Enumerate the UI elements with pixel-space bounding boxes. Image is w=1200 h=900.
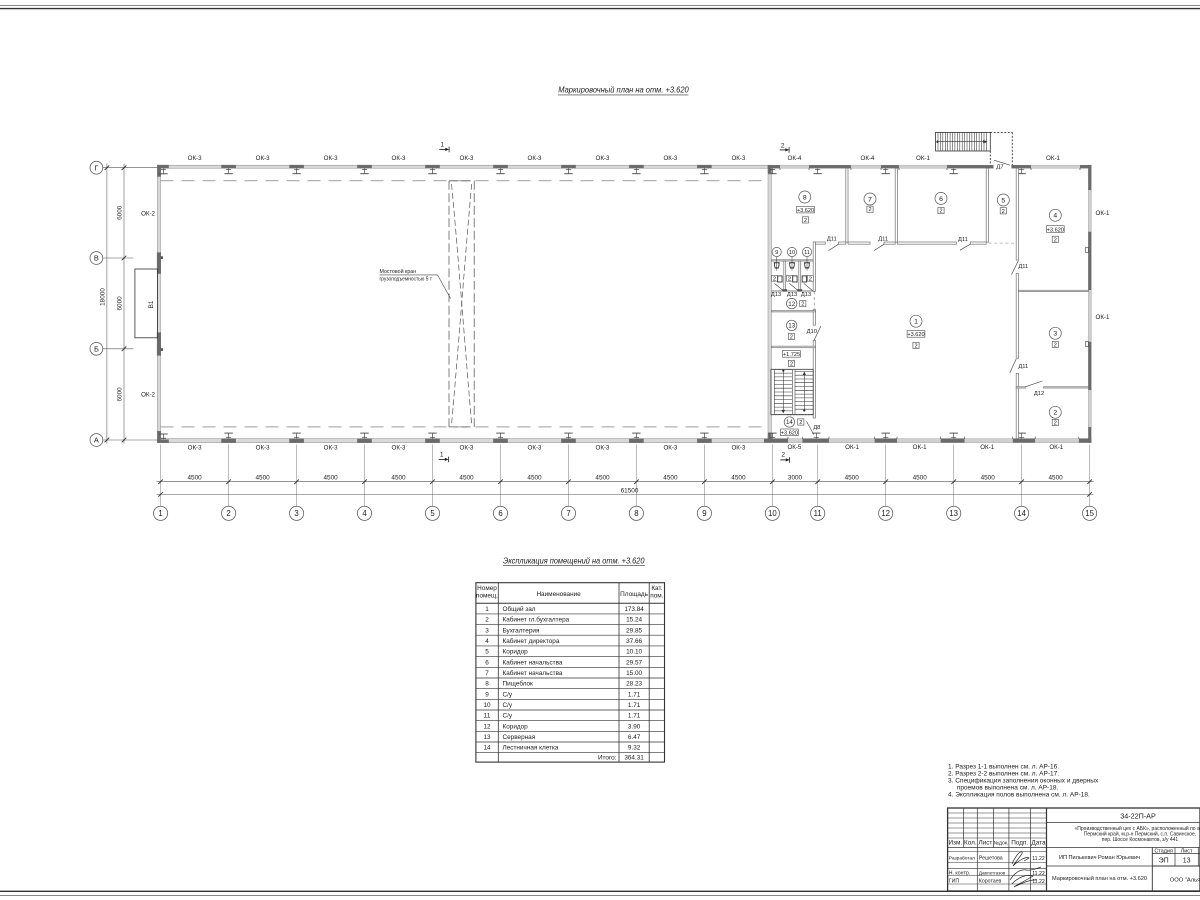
- svg-text:Кат.: Кат.: [651, 585, 662, 592]
- svg-text:ОК-3: ОК-3: [188, 444, 202, 451]
- svg-text:4500: 4500: [323, 475, 338, 482]
- svg-text:Д11: Д11: [827, 237, 837, 243]
- svg-text:3: 3: [485, 627, 489, 634]
- svg-text:8: 8: [485, 681, 489, 688]
- svg-text:Номер: Номер: [477, 585, 497, 592]
- svg-text:14: 14: [483, 745, 491, 752]
- svg-text:10: 10: [768, 509, 777, 518]
- svg-text:2: 2: [1002, 209, 1005, 215]
- svg-text:ОК-3: ОК-3: [596, 155, 610, 162]
- svg-text:ОК-2: ОК-2: [141, 391, 155, 398]
- svg-text:15.24: 15.24: [626, 617, 642, 624]
- svg-text:4500: 4500: [459, 475, 474, 482]
- svg-text:ОК-3: ОК-3: [324, 155, 338, 162]
- svg-text:ГИП: ГИП: [949, 878, 960, 884]
- svg-text:Экспликация помещений на отм.: Экспликация помещений на отм. +3.620: [503, 556, 645, 565]
- svg-text:15: 15: [1085, 509, 1094, 518]
- svg-text:6: 6: [485, 659, 489, 666]
- svg-text:ОК-1: ОК-1: [1096, 314, 1110, 321]
- svg-text:7: 7: [566, 509, 570, 518]
- svg-text:ОК-3: ОК-3: [460, 155, 474, 162]
- svg-text:ОК-3: ОК-3: [528, 444, 542, 451]
- svg-text:ОК-3: ОК-3: [392, 444, 406, 451]
- svg-text:10: 10: [789, 250, 795, 256]
- svg-text:ОК-3: ОК-3: [663, 155, 677, 162]
- svg-text:Общий зал: Общий зал: [503, 605, 536, 613]
- svg-text:Давлетгазов: Давлетгазов: [979, 870, 1006, 875]
- svg-text:2: 2: [781, 142, 785, 149]
- svg-text:Пищеблок: Пищеблок: [503, 680, 534, 688]
- svg-text:13: 13: [1183, 858, 1191, 865]
- svg-text:4500: 4500: [663, 475, 678, 482]
- svg-text:ОК-3: ОК-3: [528, 155, 542, 162]
- svg-text:1.71: 1.71: [628, 691, 641, 698]
- svg-text:Б: Б: [94, 345, 99, 354]
- svg-text:1.71: 1.71: [628, 702, 641, 709]
- svg-text:Коридор: Коридор: [503, 723, 529, 730]
- svg-text:5: 5: [1001, 197, 1005, 204]
- svg-text:Решетова: Решетова: [979, 855, 1003, 861]
- svg-text:С/у: С/у: [503, 702, 513, 709]
- svg-text:29.57: 29.57: [626, 659, 642, 666]
- svg-text:ОК-3: ОК-3: [731, 155, 745, 162]
- svg-text:ОК-3: ОК-3: [256, 444, 270, 451]
- svg-text:Д11: Д11: [1018, 364, 1028, 370]
- svg-text:9: 9: [702, 509, 706, 518]
- svg-text:364.31: 364.31: [624, 755, 644, 762]
- svg-text:11.22: 11.22: [1032, 856, 1045, 862]
- svg-text:Кабинет директора: Кабинет директора: [503, 637, 560, 645]
- svg-text:10.10: 10.10: [626, 649, 642, 656]
- svg-text:4500: 4500: [255, 475, 270, 482]
- svg-text:помещ.: помещ.: [476, 593, 498, 600]
- svg-text:6000: 6000: [117, 296, 124, 311]
- svg-text:Д8: Д8: [813, 425, 820, 431]
- svg-text:Д7: Д7: [996, 165, 1003, 171]
- svg-text:Стадия: Стадия: [1154, 848, 1172, 854]
- svg-text:3.90: 3.90: [628, 723, 641, 730]
- svg-text:1: 1: [440, 451, 444, 458]
- svg-text:4500: 4500: [913, 475, 928, 482]
- svg-text:4: 4: [1053, 213, 1057, 220]
- svg-text:ОК-1: ОК-1: [1046, 155, 1060, 162]
- svg-text:ОК-3: ОК-3: [392, 155, 406, 162]
- svg-text:ОК-3: ОК-3: [460, 444, 474, 451]
- svg-text:ОК-4: ОК-4: [788, 155, 802, 162]
- svg-text:Лист: Лист: [1181, 848, 1193, 854]
- svg-text:ЭП: ЭП: [1159, 858, 1169, 865]
- svg-text:18000: 18000: [100, 288, 107, 306]
- svg-text:пом.: пом.: [650, 593, 663, 600]
- svg-text:2: 2: [773, 276, 776, 282]
- svg-text:11: 11: [484, 713, 491, 720]
- svg-text:6: 6: [498, 509, 502, 518]
- svg-text:С/у: С/у: [503, 713, 513, 720]
- svg-text:7: 7: [485, 670, 489, 677]
- svg-text:Кол.: Кол.: [964, 840, 977, 847]
- svg-text:ОК-1: ОК-1: [1096, 210, 1110, 217]
- svg-text:4500: 4500: [527, 475, 542, 482]
- svg-text:№док.: №док.: [994, 841, 1009, 847]
- svg-text:2: 2: [790, 361, 793, 367]
- svg-text:8: 8: [803, 194, 807, 201]
- svg-text:14: 14: [786, 419, 793, 426]
- svg-text:Д11: Д11: [878, 237, 888, 243]
- svg-text:6000: 6000: [117, 387, 124, 402]
- svg-text:2: 2: [485, 617, 489, 624]
- svg-text:6000: 6000: [117, 205, 124, 220]
- svg-text:13: 13: [949, 509, 958, 518]
- svg-text:2: 2: [790, 334, 793, 340]
- svg-text:28.23: 28.23: [626, 681, 642, 688]
- svg-text:Изм.: Изм.: [948, 840, 962, 847]
- svg-text:Маркировочный план на отм. +3.: Маркировочный план на отм. +3.620: [1052, 875, 1147, 882]
- svg-text:Кабинет гл.бухгалтера: Кабинет гл.бухгалтера: [503, 616, 570, 624]
- svg-text:9: 9: [485, 691, 489, 698]
- svg-text:+1.725: +1.725: [783, 352, 800, 358]
- svg-text:5: 5: [430, 509, 435, 518]
- svg-text:ОК-1: ОК-1: [845, 444, 859, 451]
- svg-text:Д11: Д11: [1018, 264, 1028, 270]
- svg-text:2: 2: [801, 302, 804, 308]
- svg-text:Серверная: Серверная: [503, 734, 536, 741]
- svg-text:+3.620: +3.620: [797, 208, 814, 214]
- svg-text:6: 6: [939, 196, 943, 203]
- svg-text:+3.620: +3.620: [781, 431, 798, 437]
- svg-text:ОК-3: ОК-3: [324, 444, 338, 451]
- svg-text:ООО "Альянс-Проект": ООО "Альянс-Проект": [1170, 878, 1200, 884]
- svg-text:4500: 4500: [845, 475, 860, 482]
- svg-text:ОК-1: ОК-1: [980, 444, 994, 451]
- svg-text:Итого:: Итого:: [598, 755, 617, 762]
- svg-text:4500: 4500: [1048, 475, 1063, 482]
- svg-text:ОК-3: ОК-3: [663, 444, 677, 451]
- svg-text:2: 2: [804, 218, 807, 224]
- svg-text:Подп.: Подп.: [1011, 840, 1028, 847]
- svg-text:1: 1: [440, 141, 444, 148]
- svg-text:2: 2: [1054, 237, 1057, 243]
- svg-text:4500: 4500: [731, 475, 746, 482]
- svg-text:ОК-1: ОК-1: [916, 155, 930, 162]
- svg-text:3: 3: [1053, 331, 1057, 338]
- svg-text:ОК-3: ОК-3: [596, 444, 610, 451]
- svg-text:ОК-4: ОК-4: [861, 155, 875, 162]
- svg-text:Д12: Д12: [1034, 391, 1044, 397]
- svg-text:Н. контр.: Н. контр.: [949, 870, 970, 876]
- svg-text:Наименование: Наименование: [536, 591, 581, 598]
- svg-text:ОК-1: ОК-1: [1049, 444, 1063, 451]
- svg-text:С/у: С/у: [503, 691, 513, 698]
- svg-text:Мостовой кран: Мостовой кран: [380, 268, 417, 275]
- svg-text:4500: 4500: [391, 475, 406, 482]
- svg-text:В: В: [94, 254, 99, 263]
- svg-text:9.32: 9.32: [628, 745, 641, 752]
- svg-text:2: 2: [788, 276, 791, 282]
- svg-text:Д13: Д13: [801, 292, 811, 298]
- svg-text:13: 13: [788, 323, 795, 330]
- svg-text:Д11: Д11: [958, 237, 968, 243]
- svg-text:1: 1: [485, 606, 489, 613]
- svg-text:2: 2: [226, 509, 230, 518]
- svg-text:4. Экспликация полов выполнена: 4. Экспликация полов выполнена см. л. АР…: [948, 791, 1090, 798]
- svg-text:Лист: Лист: [978, 840, 992, 847]
- svg-text:6.47: 6.47: [628, 734, 641, 741]
- svg-text:Площадь: Площадь: [620, 591, 648, 598]
- svg-text:1: 1: [914, 319, 918, 326]
- svg-text:15.00: 15.00: [626, 670, 642, 677]
- svg-text:1.71: 1.71: [628, 713, 641, 720]
- svg-text:12: 12: [881, 509, 890, 518]
- svg-text:2: 2: [914, 343, 917, 349]
- svg-text:+3.620: +3.620: [907, 332, 924, 338]
- svg-text:пер. Шоссе Космонавтов, з/у 44: пер. Шоссе Космонавтов, з/у 441: [1102, 837, 1179, 843]
- svg-text:ОК-2: ОК-2: [141, 210, 155, 217]
- svg-text:7: 7: [868, 196, 872, 203]
- svg-text:+3.620: +3.620: [1047, 227, 1064, 233]
- svg-text:11: 11: [804, 250, 810, 256]
- svg-text:4500: 4500: [187, 475, 202, 482]
- svg-text:61500: 61500: [621, 487, 639, 494]
- svg-text:11.22: 11.22: [1032, 871, 1045, 877]
- svg-text:3000: 3000: [788, 475, 803, 482]
- svg-text:Кабинет начальства: Кабинет начальства: [503, 669, 563, 677]
- svg-text:грузоподъемностью 5 т: грузоподъемностью 5 т: [380, 276, 433, 282]
- svg-text:Коротаев: Коротаев: [979, 878, 1002, 884]
- svg-text:4500: 4500: [981, 475, 996, 482]
- svg-text:А: А: [94, 436, 99, 445]
- svg-text:Д10: Д10: [807, 329, 817, 335]
- svg-text:2: 2: [868, 207, 871, 213]
- svg-text:Коридор: Коридор: [503, 649, 529, 656]
- svg-text:4500: 4500: [595, 475, 610, 482]
- svg-text:ИП Пилькевич Роман Юрьевич: ИП Пилькевич Роман Юрьевич: [1059, 855, 1140, 861]
- svg-text:ОК-3: ОК-3: [256, 155, 270, 162]
- svg-text:14: 14: [1017, 509, 1026, 518]
- svg-text:13: 13: [483, 734, 491, 741]
- svg-text:37.66: 37.66: [626, 638, 642, 645]
- svg-text:2: 2: [781, 452, 785, 459]
- svg-text:12: 12: [788, 301, 795, 308]
- svg-text:ОК-3: ОК-3: [731, 444, 745, 451]
- svg-text:4: 4: [362, 509, 367, 518]
- svg-text:ОК-5: ОК-5: [787, 444, 801, 451]
- svg-text:Г: Г: [94, 163, 98, 172]
- svg-text:2: 2: [1053, 410, 1057, 417]
- svg-text:11: 11: [814, 509, 822, 518]
- svg-text:2: 2: [939, 209, 942, 215]
- svg-text:29.85: 29.85: [626, 627, 642, 634]
- svg-text:В1: В1: [148, 300, 155, 308]
- svg-text:ОК-3: ОК-3: [188, 155, 202, 162]
- svg-text:3: 3: [294, 509, 298, 518]
- svg-text:2: 2: [1054, 421, 1057, 427]
- svg-text:8: 8: [634, 509, 638, 518]
- svg-text:Маркировочный план на отм. +3: Маркировочный план на отм. +3.620: [558, 86, 689, 95]
- svg-text:173.84: 173.84: [624, 606, 644, 613]
- svg-text:Лестничная клетка: Лестничная клетка: [503, 745, 559, 752]
- svg-text:2: 2: [1054, 342, 1057, 348]
- svg-text:2: 2: [799, 420, 802, 426]
- svg-text:10: 10: [483, 702, 491, 709]
- svg-text:Бухгалтерия: Бухгалтерия: [503, 627, 540, 634]
- svg-text:ОК-1: ОК-1: [913, 444, 927, 451]
- svg-text:Д13: Д13: [771, 292, 781, 298]
- svg-text:2: 2: [809, 276, 812, 282]
- svg-text:Кабинет начальства: Кабинет начальства: [503, 658, 563, 666]
- svg-text:Д13: Д13: [787, 292, 797, 298]
- svg-text:Дата: Дата: [1031, 840, 1046, 847]
- svg-text:4: 4: [485, 638, 489, 645]
- svg-text:9: 9: [775, 250, 778, 256]
- svg-text:Разработал: Разработал: [949, 855, 975, 861]
- svg-text:5: 5: [485, 649, 489, 656]
- svg-text:34-22П-АР: 34-22П-АР: [1120, 811, 1156, 820]
- svg-text:12: 12: [483, 723, 491, 730]
- svg-text:1: 1: [158, 509, 162, 518]
